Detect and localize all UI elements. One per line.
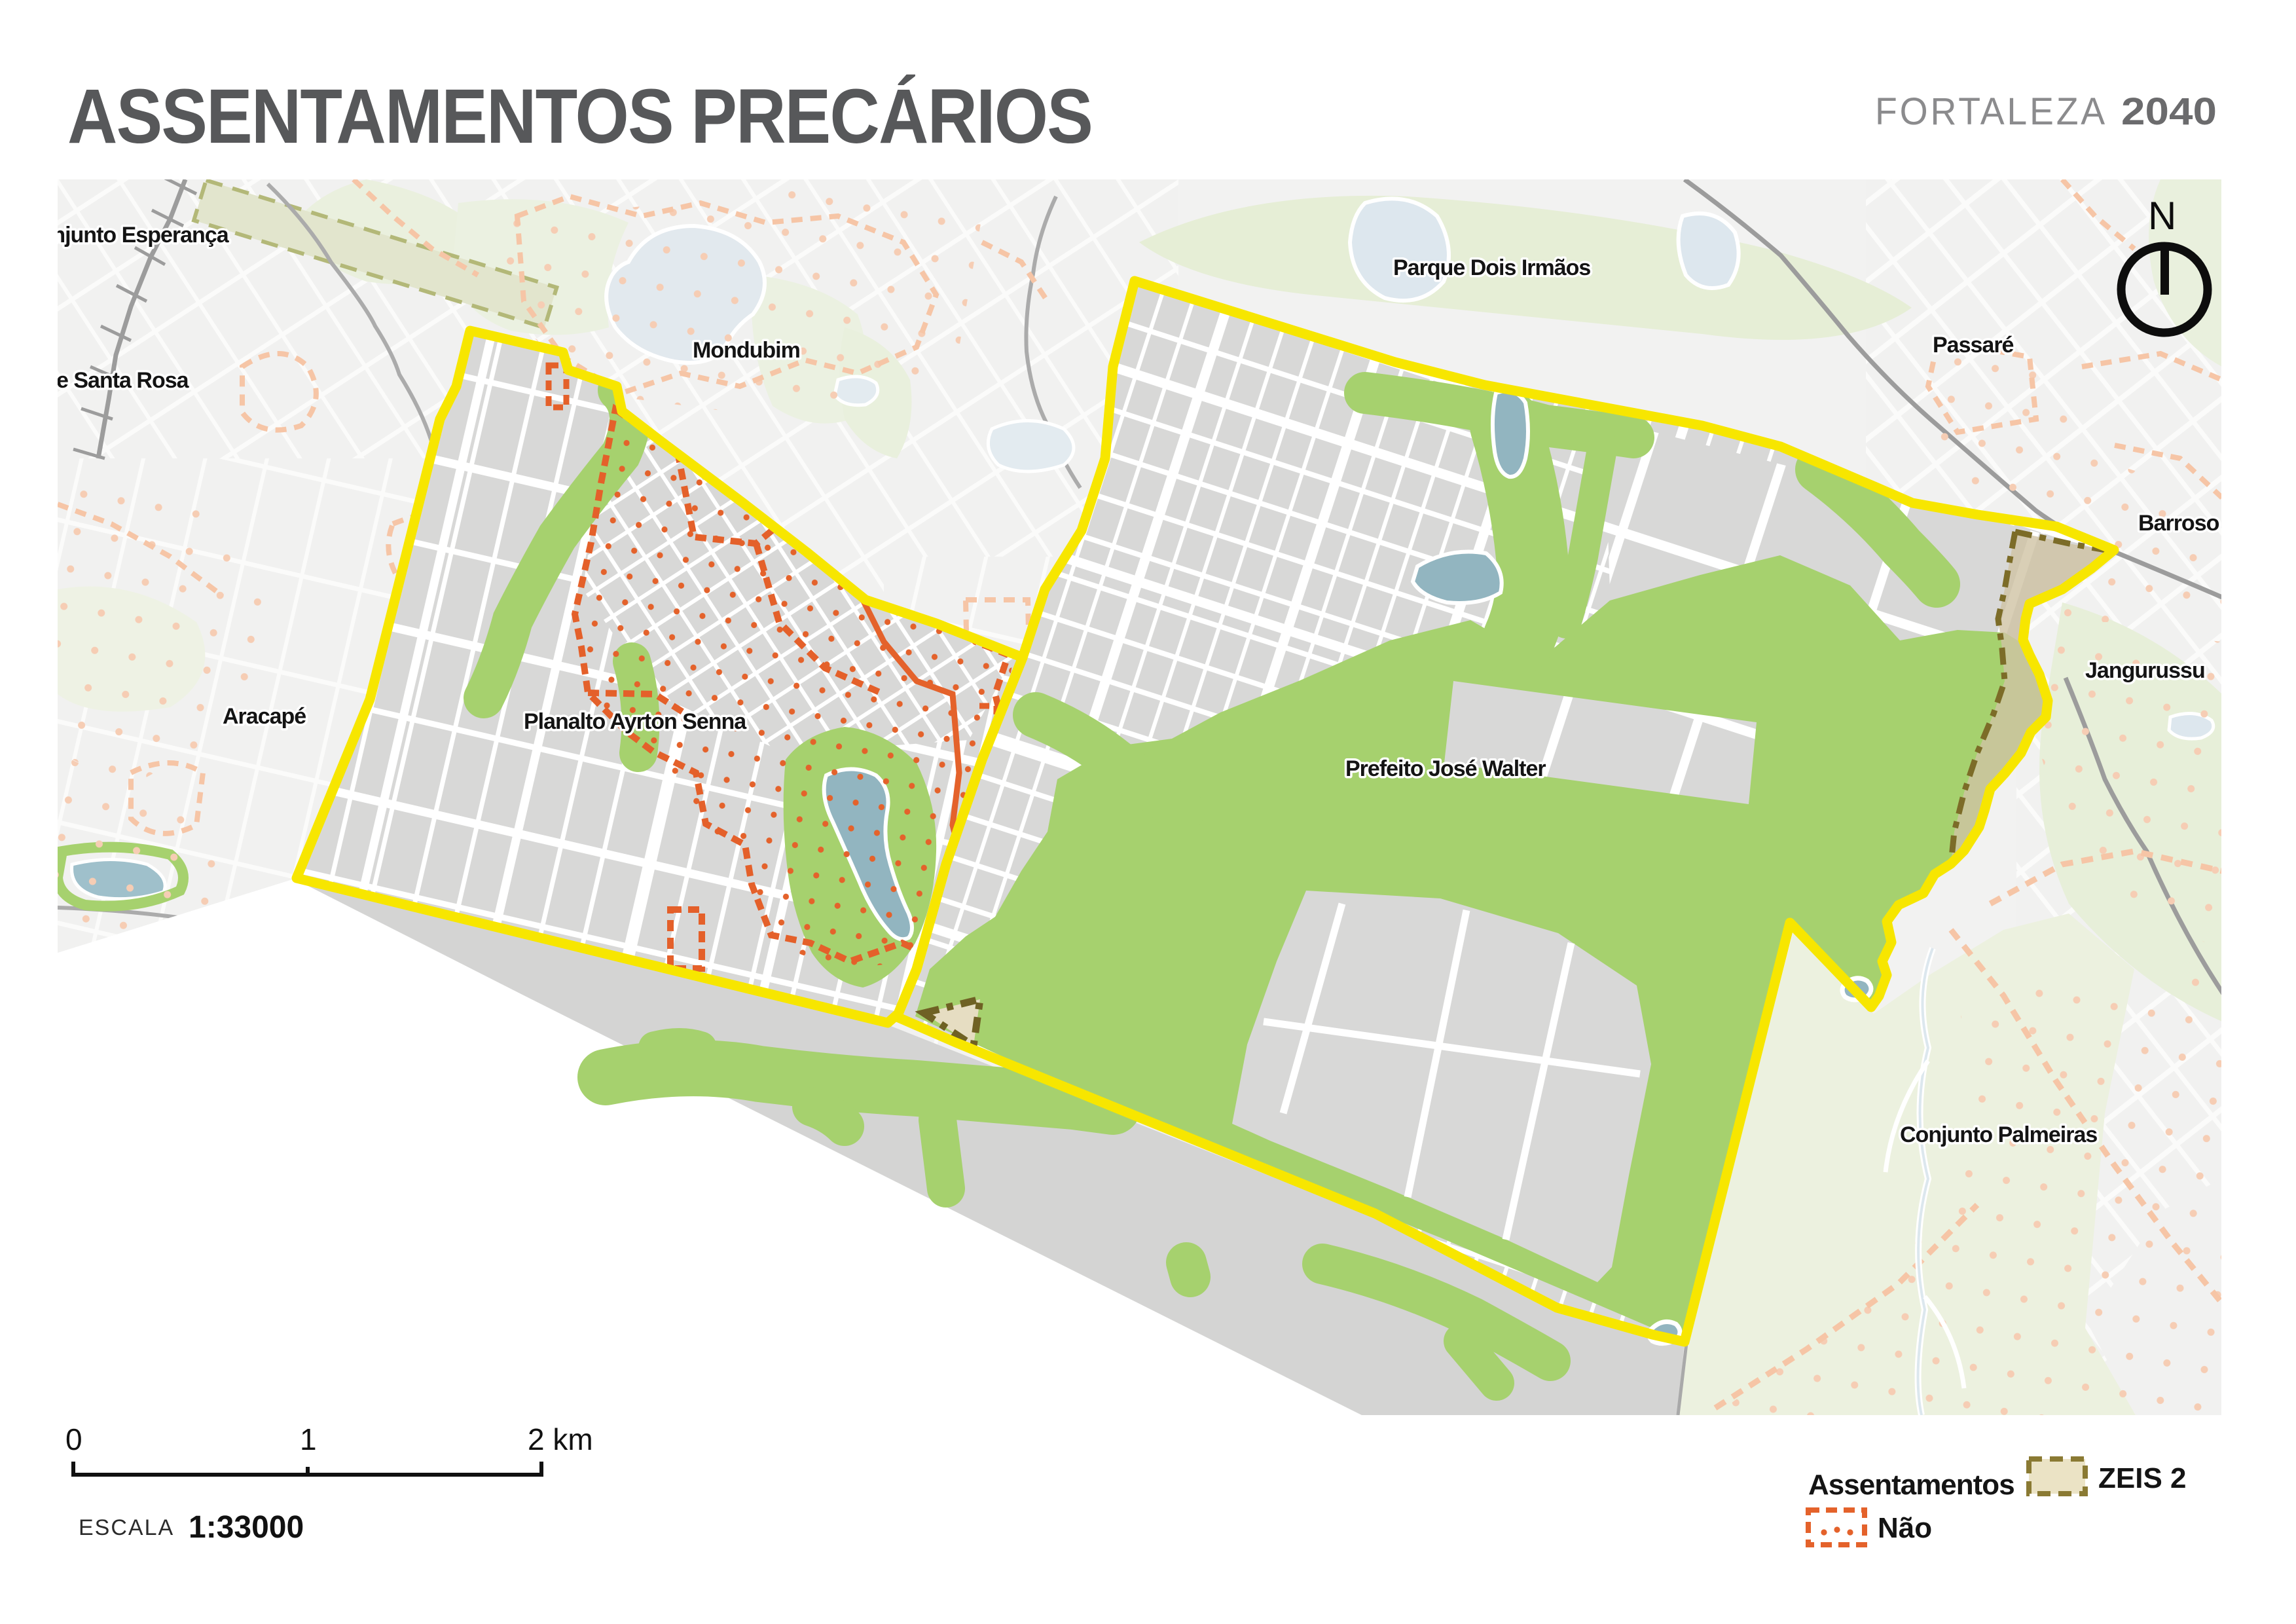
svg-text:Aracapé: Aracapé [223, 704, 306, 729]
svg-text:N: N [2148, 194, 2176, 238]
svg-text:Prefeito José Walter: Prefeito José Walter [1345, 756, 1546, 781]
svg-text:ZEIS 2: ZEIS 2 [2098, 1462, 2187, 1494]
svg-text:2 km: 2 km [528, 1422, 593, 1456]
svg-text:Conjunto Palmeiras: Conjunto Palmeiras [1900, 1122, 2097, 1147]
svg-text:1: 1 [300, 1422, 317, 1456]
svg-text:Passaré: Passaré [1933, 333, 2014, 358]
svg-text:Parque Dois Irmãos: Parque Dois Irmãos [1393, 255, 1590, 280]
svg-text:e Santa Rosa: e Santa Rosa [56, 368, 190, 393]
svg-text:ESCALA: ESCALA [79, 1515, 174, 1540]
svg-text:Jangurussu: Jangurussu [2085, 658, 2205, 683]
svg-text:2040: 2040 [2121, 90, 2217, 133]
svg-text:Mondubim: Mondubim [693, 338, 800, 363]
svg-text:Barroso: Barroso [2138, 511, 2219, 536]
svg-text:Não: Não [1878, 1512, 1932, 1544]
svg-text:FORTALEZA: FORTALEZA [1875, 90, 2107, 133]
svg-text:0: 0 [65, 1422, 82, 1456]
svg-text:ASSENTAMENTOS PRECÁRIOS: ASSENTAMENTOS PRECÁRIOS [67, 73, 1092, 160]
svg-text:Assentamentos: Assentamentos [1808, 1469, 2014, 1501]
svg-text:Planalto Ayrton Senna: Planalto Ayrton Senna [524, 709, 747, 734]
svg-text:1:33000: 1:33000 [189, 1510, 304, 1545]
